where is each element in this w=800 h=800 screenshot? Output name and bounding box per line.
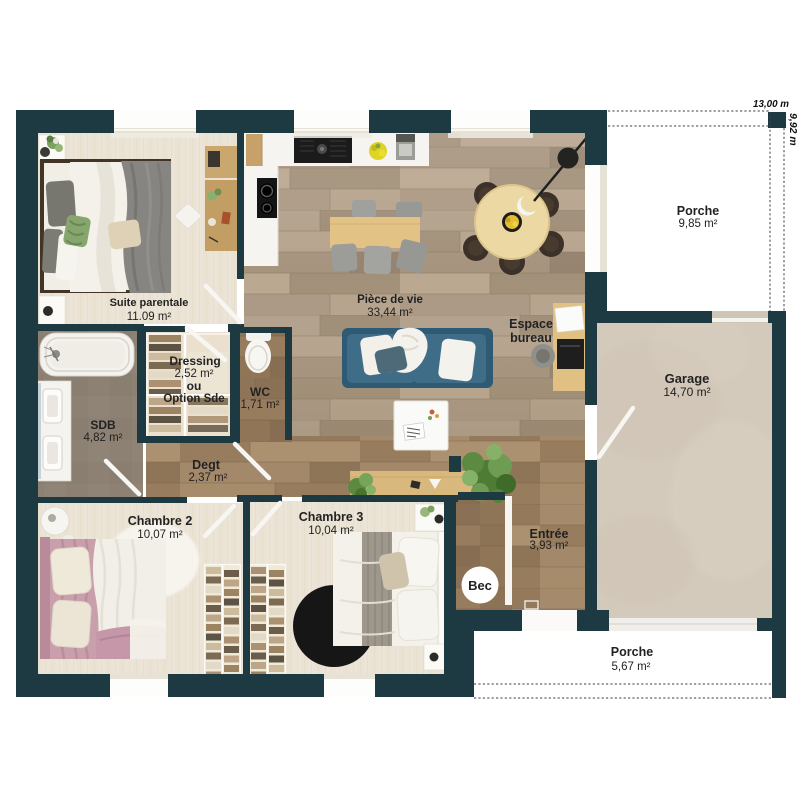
svg-text:Degt: Degt bbox=[192, 458, 221, 472]
svg-text:4,82 m²: 4,82 m² bbox=[84, 432, 123, 444]
svg-text:Chambre 2: Chambre 2 bbox=[128, 514, 193, 528]
svg-text:5,67 m²: 5,67 m² bbox=[612, 661, 651, 673]
svg-text:9,85 m²: 9,85 m² bbox=[679, 218, 718, 230]
svg-text:14,70 m²: 14,70 m² bbox=[663, 385, 710, 399]
svg-text:9,92 m: 9,92 m bbox=[787, 113, 799, 146]
svg-text:Pièce de vie: Pièce de vie bbox=[357, 294, 423, 306]
svg-text:Chambre 3: Chambre 3 bbox=[299, 510, 364, 524]
svg-text:Bec: Bec bbox=[468, 578, 492, 593]
svg-text:Porche: Porche bbox=[677, 204, 719, 218]
svg-text:bureau: bureau bbox=[510, 331, 552, 345]
svg-text:10,04 m²: 10,04 m² bbox=[308, 525, 354, 537]
svg-text:Suite parentale: Suite parentale bbox=[110, 297, 189, 309]
svg-text:3,93 m²: 3,93 m² bbox=[530, 540, 569, 552]
svg-text:SDB: SDB bbox=[90, 418, 116, 432]
svg-text:33,44 m²: 33,44 m² bbox=[367, 307, 413, 319]
svg-text:Dressing: Dressing bbox=[169, 354, 220, 368]
svg-text:10,07 m²: 10,07 m² bbox=[137, 529, 183, 541]
svg-text:2,37 m²: 2,37 m² bbox=[189, 472, 228, 484]
svg-text:WC: WC bbox=[250, 385, 270, 399]
svg-text:Espace: Espace bbox=[509, 317, 553, 331]
svg-text:13,00 m: 13,00 m bbox=[753, 99, 789, 110]
svg-text:11.09 m²: 11.09 m² bbox=[127, 311, 172, 323]
svg-text:ou: ou bbox=[187, 379, 202, 393]
svg-text:Porche: Porche bbox=[611, 645, 653, 659]
svg-text:Option Sde: Option Sde bbox=[163, 393, 224, 405]
svg-text:Garage: Garage bbox=[665, 371, 710, 386]
svg-text:Entrée: Entrée bbox=[530, 527, 569, 541]
svg-text:1,71 m²: 1,71 m² bbox=[241, 399, 280, 411]
